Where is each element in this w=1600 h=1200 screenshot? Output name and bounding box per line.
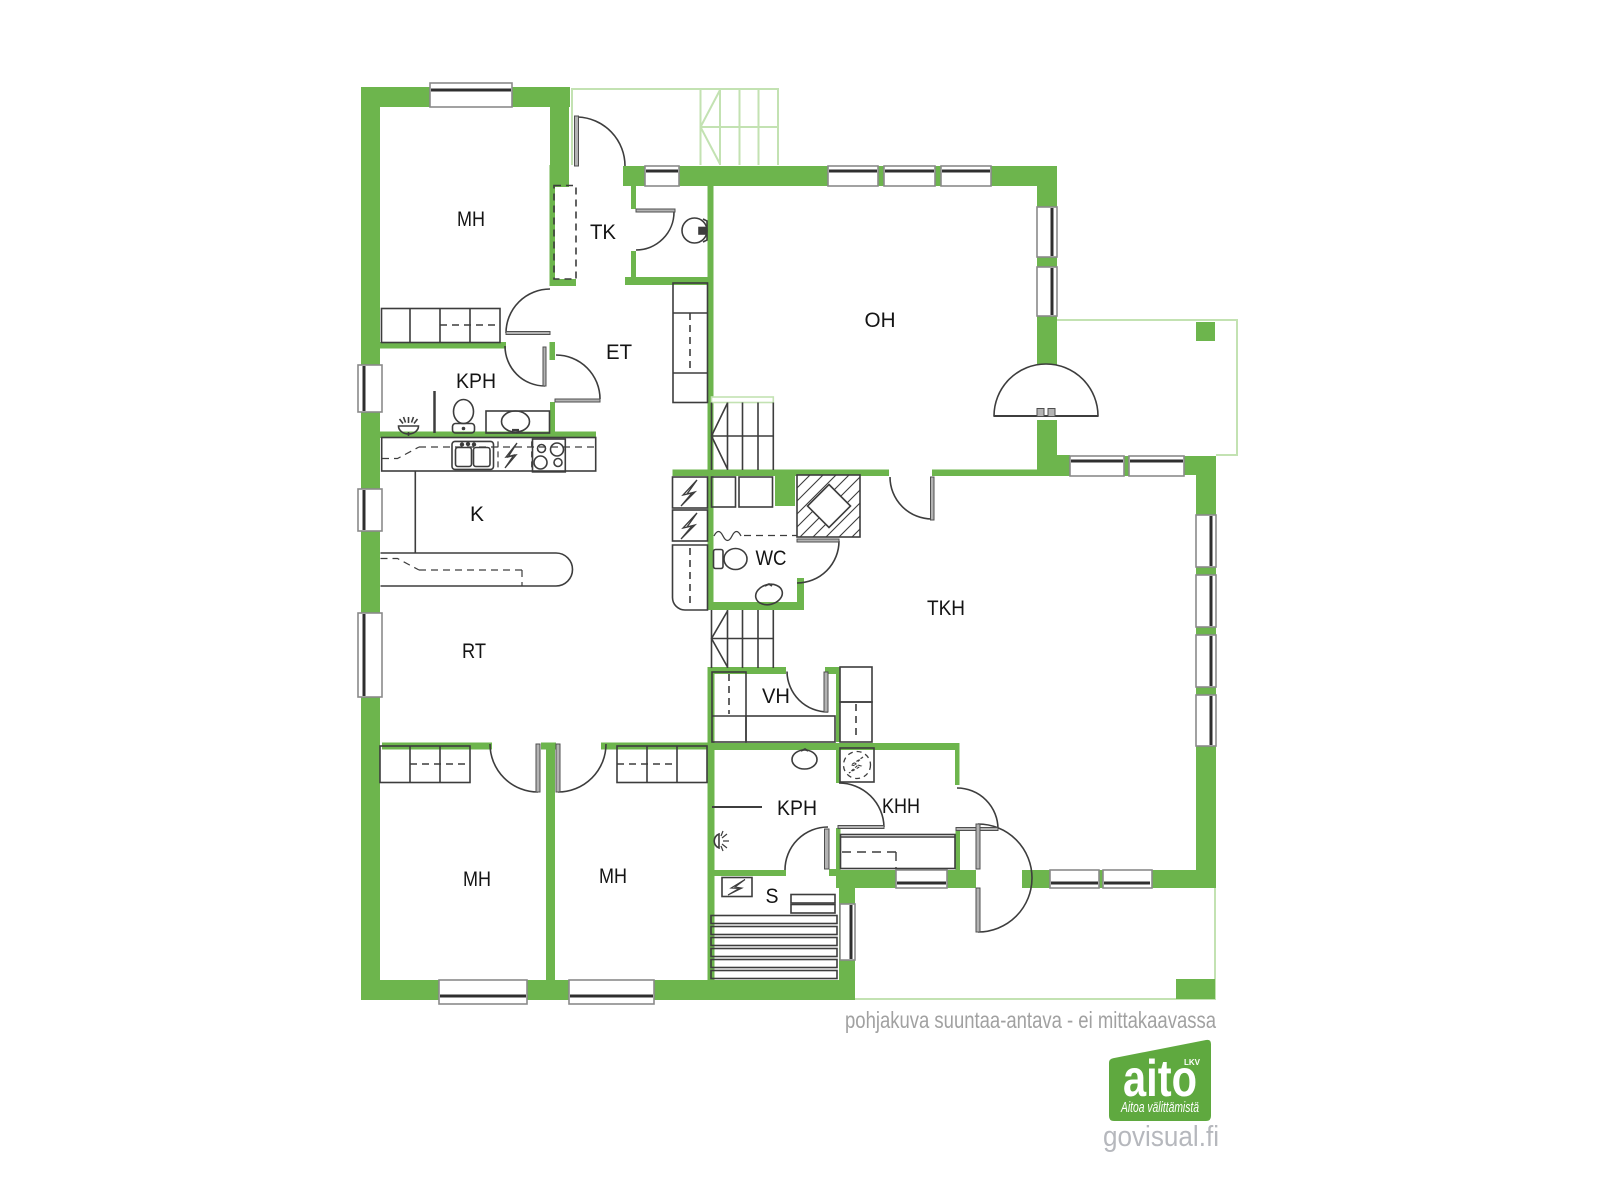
svg-text:OH: OH	[865, 309, 896, 332]
svg-text:TKH: TKH	[927, 597, 965, 620]
svg-text:MH: MH	[599, 865, 627, 888]
svg-text:K: K	[470, 503, 484, 526]
svg-text:Aitoa välittämistä: Aitoa välittämistä	[1120, 1099, 1199, 1116]
svg-text:LKV: LKV	[1184, 1058, 1201, 1067]
svg-text:RT: RT	[462, 640, 486, 663]
svg-text:WC: WC	[756, 547, 787, 570]
svg-text:TK: TK	[590, 221, 616, 244]
svg-text:MH: MH	[457, 208, 485, 231]
svg-text:pohjakuva suuntaa-antava - ei: pohjakuva suuntaa-antava - ei mittakaava…	[845, 1007, 1217, 1033]
svg-text:govisual.fi: govisual.fi	[1103, 1121, 1219, 1153]
svg-text:ET: ET	[606, 341, 632, 364]
svg-text:KPH: KPH	[456, 370, 496, 393]
svg-text:KPH: KPH	[777, 797, 817, 820]
svg-text:MH: MH	[463, 868, 491, 891]
svg-text:KHH: KHH	[882, 795, 920, 818]
svg-text:S: S	[766, 885, 779, 908]
svg-text:VH: VH	[762, 685, 790, 708]
